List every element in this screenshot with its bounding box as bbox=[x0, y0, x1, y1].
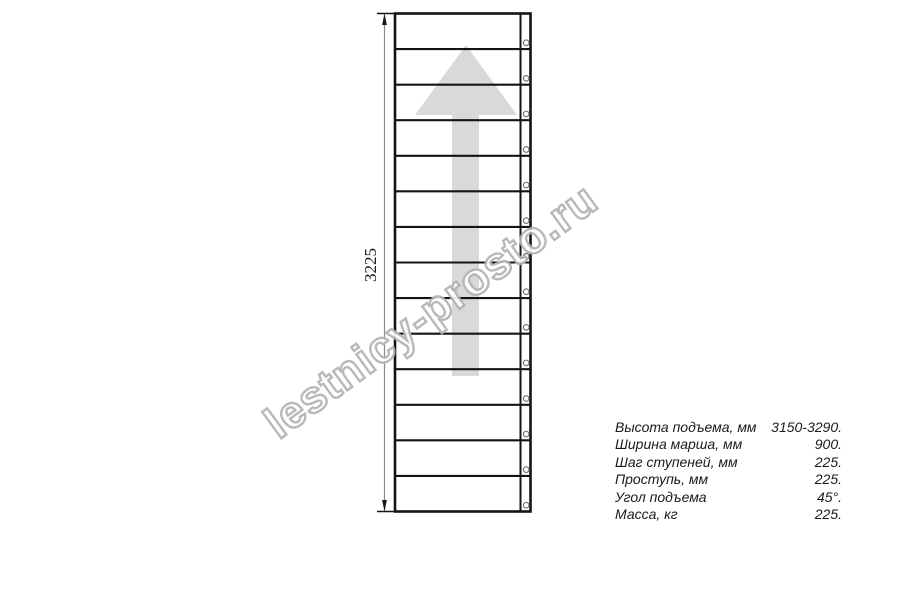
spec-value: 225. bbox=[815, 471, 842, 488]
spec-value: 225. bbox=[815, 506, 842, 523]
step-bolt-circle bbox=[523, 253, 529, 259]
spec-row: Высота подъема, мм3150-3290. bbox=[615, 419, 842, 436]
spec-row: Шаг ступеней, мм225. bbox=[615, 454, 842, 471]
step-bolt-circle bbox=[523, 40, 529, 46]
spec-value: 225. bbox=[815, 454, 842, 471]
direction-up-arrow bbox=[415, 45, 517, 376]
spec-value: 3150-3290. bbox=[771, 419, 842, 436]
step-bolt-circle bbox=[523, 147, 529, 153]
spec-row: Проступь, мм225. bbox=[615, 471, 842, 488]
spec-label: Угол подъема bbox=[615, 489, 707, 506]
spec-row: Масса, кг225. bbox=[615, 506, 842, 523]
spec-label: Проступь, мм bbox=[615, 471, 708, 488]
spec-label: Высота подъема, мм bbox=[615, 419, 757, 436]
height-dimension: 3225 bbox=[361, 14, 395, 512]
step-bolt-circle bbox=[523, 111, 529, 117]
dimension-arrow-bottom-icon bbox=[382, 500, 387, 512]
step-bolt-circle bbox=[523, 218, 529, 224]
spec-value: 900. bbox=[815, 436, 842, 453]
step-bolt-circle bbox=[523, 467, 529, 473]
step-bolt-circle bbox=[523, 396, 529, 402]
spec-row: Ширина марша, мм900. bbox=[615, 436, 842, 453]
spec-value: 45°. bbox=[817, 489, 842, 506]
step-bolt-circle bbox=[523, 502, 529, 508]
spec-label: Ширина марша, мм bbox=[615, 436, 742, 453]
step-bolt-circle bbox=[523, 76, 529, 82]
dimension-arrow-top-icon bbox=[382, 14, 387, 26]
step-bolt-circle bbox=[523, 289, 529, 295]
spec-label: Шаг ступеней, мм bbox=[615, 454, 738, 471]
spec-row: Угол подъема45°. bbox=[615, 489, 842, 506]
step-bolt-circle bbox=[523, 360, 529, 366]
step-bolt-circle bbox=[523, 182, 529, 188]
stairs-drawing-page: 3225 lestnicy-prosto.ru Высота подъема, … bbox=[0, 0, 900, 600]
step-bolt-circle bbox=[523, 431, 529, 437]
spec-table: Высота подъема, мм3150-3290.Ширина марша… bbox=[615, 419, 842, 524]
dimension-value: 3225 bbox=[361, 248, 380, 282]
step-bolt-circle bbox=[523, 325, 529, 331]
bolt-circles bbox=[523, 40, 529, 508]
spec-label: Масса, кг bbox=[615, 506, 678, 523]
